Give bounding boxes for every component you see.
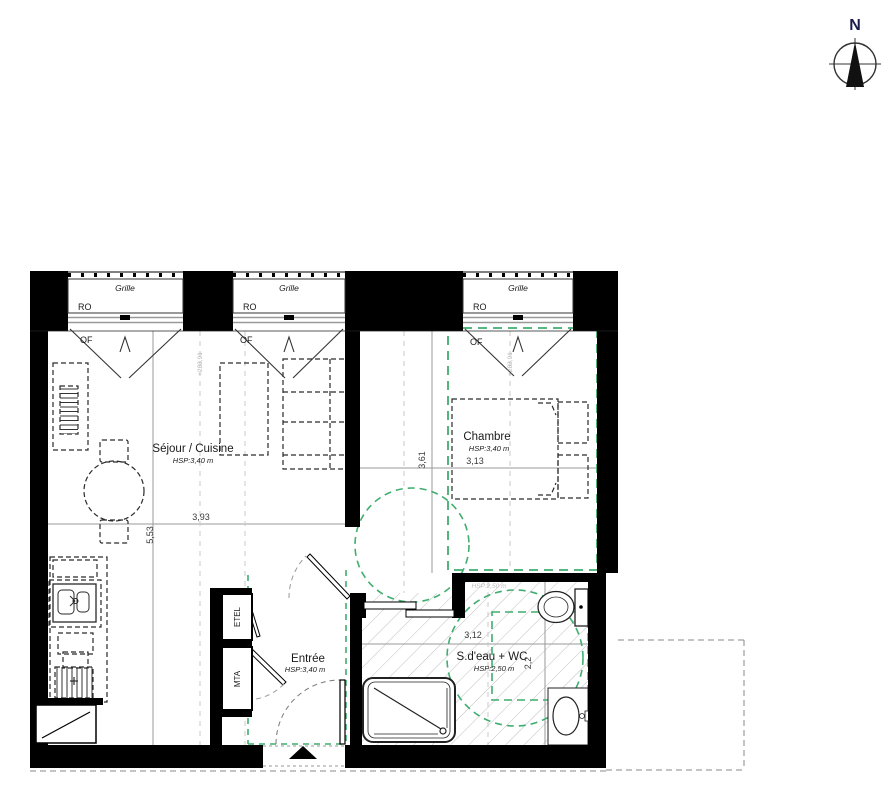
grille-label: Grille: [115, 283, 135, 293]
wall-bottom-right: [345, 745, 606, 768]
casement-chevron: [284, 337, 294, 352]
window-sill-tick: [120, 315, 130, 320]
floor-plan-page: Grille RO OF Grille RO OF: [0, 0, 891, 800]
ro-label: RO: [243, 302, 257, 312]
entree-name: Entrée: [291, 653, 325, 665]
niche-box: [36, 705, 96, 743]
casement-swing-right: [293, 329, 343, 378]
entrance-door-swing: [276, 680, 340, 744]
sejour-name: Séjour / Cuisine: [152, 443, 233, 455]
casement-chevron: [513, 337, 523, 352]
dim-bath-width: 3,12: [464, 630, 482, 640]
mta-label: MTA: [233, 670, 242, 687]
wall-right-upper: [597, 271, 618, 573]
wall-chambre-bath: [463, 573, 598, 582]
grille-label: Grille: [279, 283, 299, 293]
of-label: OF: [240, 335, 253, 345]
north-label: N: [849, 17, 861, 34]
round-table: [84, 461, 144, 521]
casement-chevron: [120, 337, 130, 352]
entrance-arrow: [289, 746, 317, 759]
etel-label: ETEL: [233, 606, 242, 627]
wall-pier-top-2: [183, 271, 233, 331]
casement-swing-left: [70, 329, 121, 378]
north-arrow: N: [829, 17, 881, 90]
sliding-leaf-1: [364, 602, 416, 609]
radiator: [53, 363, 88, 450]
niche-cap: [36, 698, 103, 705]
pillow-mark-top: [538, 403, 556, 415]
chambre-hsp: HSP:3,40 m: [469, 444, 509, 453]
level-mark-left: +283,91: [197, 352, 204, 376]
shower: [363, 678, 455, 742]
entree-hsp: HSP:3,40 m: [285, 665, 325, 674]
dim-chambre-depth: 3,61: [417, 451, 427, 469]
kitchen-unit: [49, 557, 107, 702]
level-mark-right: +283,91: [507, 352, 514, 376]
dim-sejour-depth: 5,53: [145, 526, 155, 544]
chambre-turning-circle: [355, 488, 469, 602]
basin-faucet: [580, 714, 585, 719]
wall-pier-top-left: [30, 271, 68, 331]
washbasin: [548, 688, 591, 745]
kitchen-appliance-upper: [58, 633, 93, 654]
dimension-labels: 3,93 5,53 3,61 3,13 3,12 2,2: [145, 451, 533, 669]
pillow-mark-bottom: [538, 483, 556, 495]
wall-right-bath: [588, 573, 606, 745]
closets: ETEL MTA: [222, 594, 252, 710]
wall-left: [30, 331, 48, 745]
chair-top: [100, 440, 128, 462]
window-bay-2: Grille RO OF: [233, 272, 345, 378]
shower-drain: [440, 728, 446, 734]
technical-niche: [36, 705, 96, 743]
wall-pier-top-3: [345, 271, 463, 331]
casement-swing-right: [522, 329, 571, 376]
ro-label: RO: [473, 302, 487, 312]
toilet-bowl-inner: [544, 597, 568, 617]
window-bay-1: Grille RO OF: [68, 272, 183, 378]
sliding-leaf-2: [406, 610, 454, 617]
sejour-door-leaf: [307, 554, 350, 599]
casement-swing-right: [129, 329, 181, 378]
ro-label: RO: [78, 302, 92, 312]
window-sill-tick: [513, 315, 523, 320]
basin-bowl: [553, 697, 579, 735]
chambre-name: Chambre: [463, 431, 510, 443]
sofa: [283, 359, 350, 469]
nightstand-top: [558, 402, 588, 443]
kitchen-worktop: [53, 560, 97, 577]
wall-bottom-left: [30, 745, 263, 768]
grille-label: Grille: [508, 283, 528, 293]
wall-sejour-chambre: [345, 331, 360, 527]
of-label: OF: [80, 335, 93, 345]
entrance-door-leaf: [340, 680, 345, 744]
floor-plan-drawing: Grille RO OF Grille RO OF: [0, 0, 891, 800]
sofa-outline: [283, 359, 350, 469]
sejour-door-swing: [289, 556, 306, 598]
toilet-flush-button: [579, 605, 583, 609]
dim-sejour-width: 3,93: [192, 512, 210, 522]
of-label: OF: [470, 337, 483, 347]
window-sill-tick: [284, 315, 294, 320]
wall-closet-back: [210, 588, 222, 745]
bath-hsp: HSP:2,50 m: [474, 664, 514, 673]
bath-name: S.d'eau + WC: [457, 651, 528, 663]
bath-hsp-faint: HSP:2,50 m: [471, 583, 507, 590]
dining-set: [84, 440, 144, 543]
dim-bath-depth: 2,2: [523, 657, 533, 670]
chair-bottom: [100, 520, 128, 543]
wardrobe: [220, 363, 268, 455]
closet-cap-bottom: [222, 710, 252, 717]
windows: Grille RO OF Grille RO OF: [68, 272, 573, 378]
sejour-hsp: HSP:3,40 m: [173, 456, 213, 465]
window-bay-3: Grille RO OF: [463, 272, 573, 376]
nightstand-bottom: [558, 455, 588, 498]
radiator-fins: [60, 386, 78, 434]
dim-chambre-width: 3,13: [466, 456, 484, 466]
wall-bath-west: [350, 618, 362, 745]
